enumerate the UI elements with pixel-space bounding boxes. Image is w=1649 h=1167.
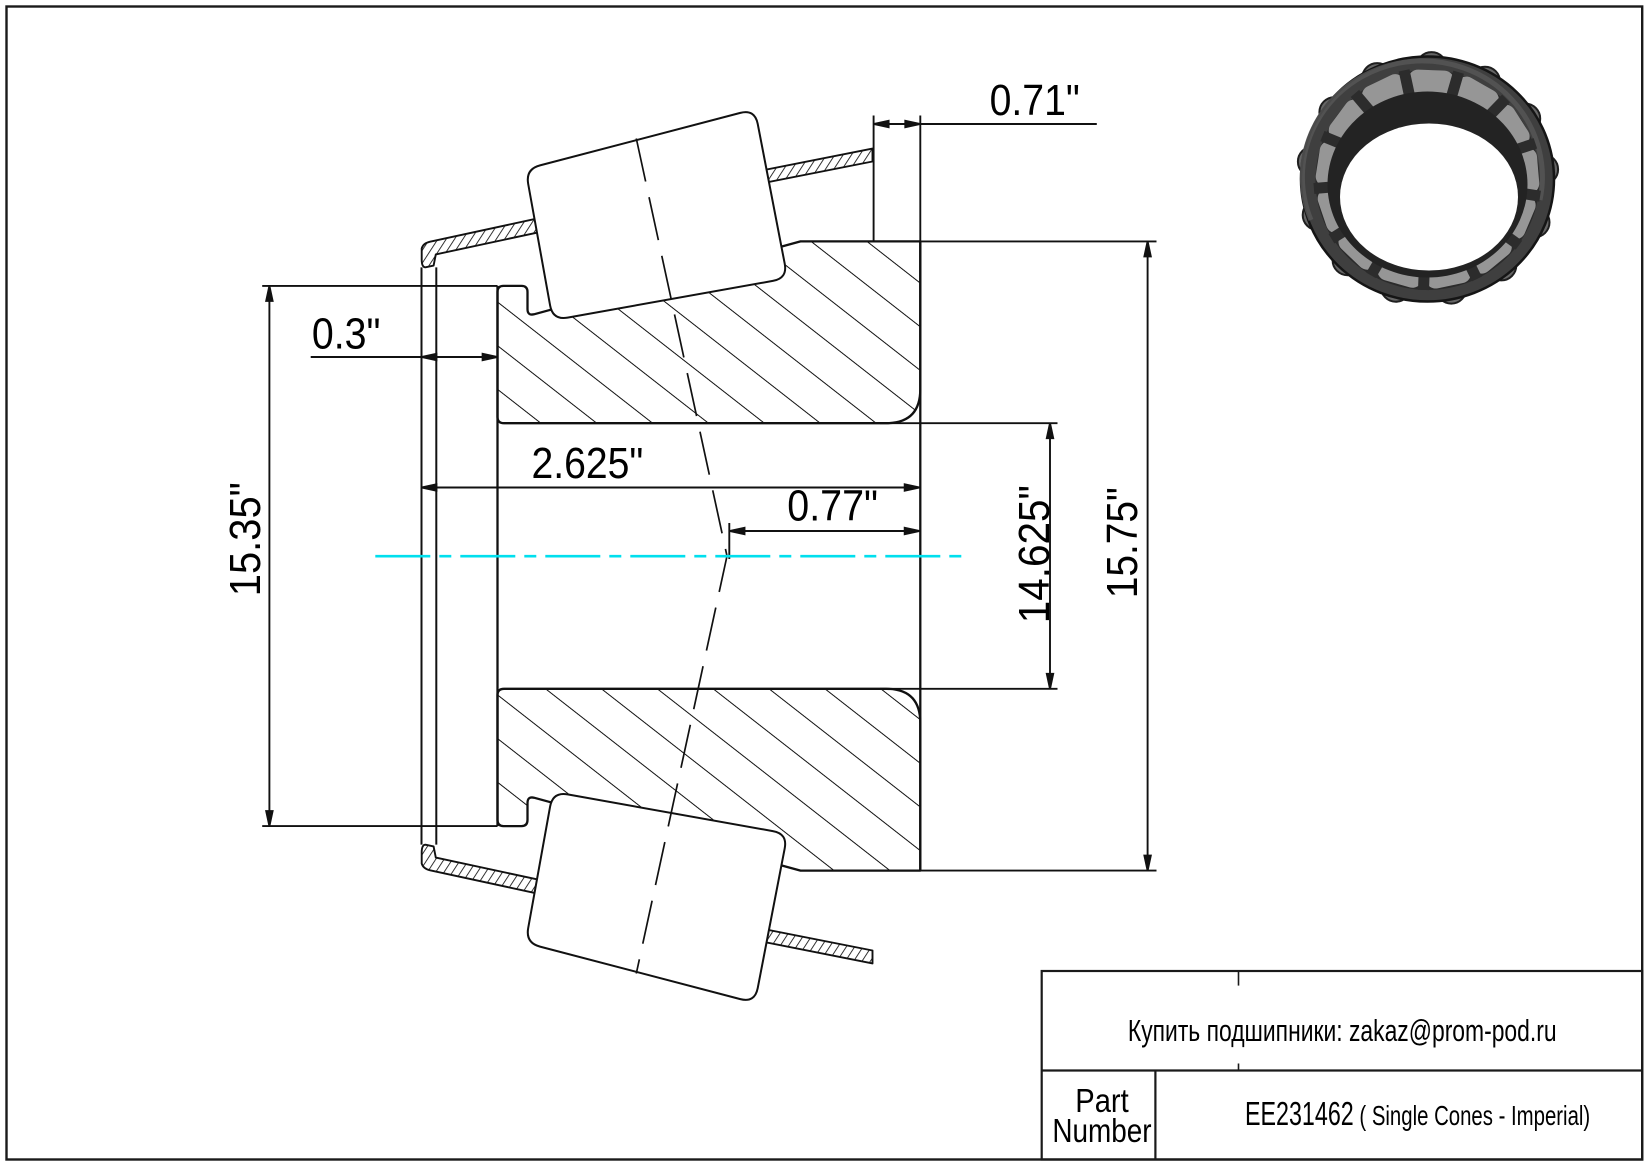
- svg-text:0.71": 0.71": [990, 76, 1080, 125]
- svg-text:0.77": 0.77": [787, 481, 878, 530]
- svg-text:0.3": 0.3": [312, 310, 381, 359]
- svg-text:2.625": 2.625": [532, 439, 644, 488]
- svg-text:Купить подшипники: zakaz@prom-: Купить подшипники: zakaz@prom-pod.ru: [1128, 1014, 1557, 1048]
- svg-text:Number: Number: [1052, 1112, 1151, 1149]
- svg-text:EE231462: EE231462: [1245, 1095, 1354, 1132]
- svg-text:( Single Cones - Imperial): ( Single Cones - Imperial): [1359, 1100, 1590, 1131]
- svg-text:15.35": 15.35": [221, 482, 270, 596]
- svg-text:14.625": 14.625": [1010, 485, 1059, 623]
- svg-text:15.75": 15.75": [1098, 487, 1147, 598]
